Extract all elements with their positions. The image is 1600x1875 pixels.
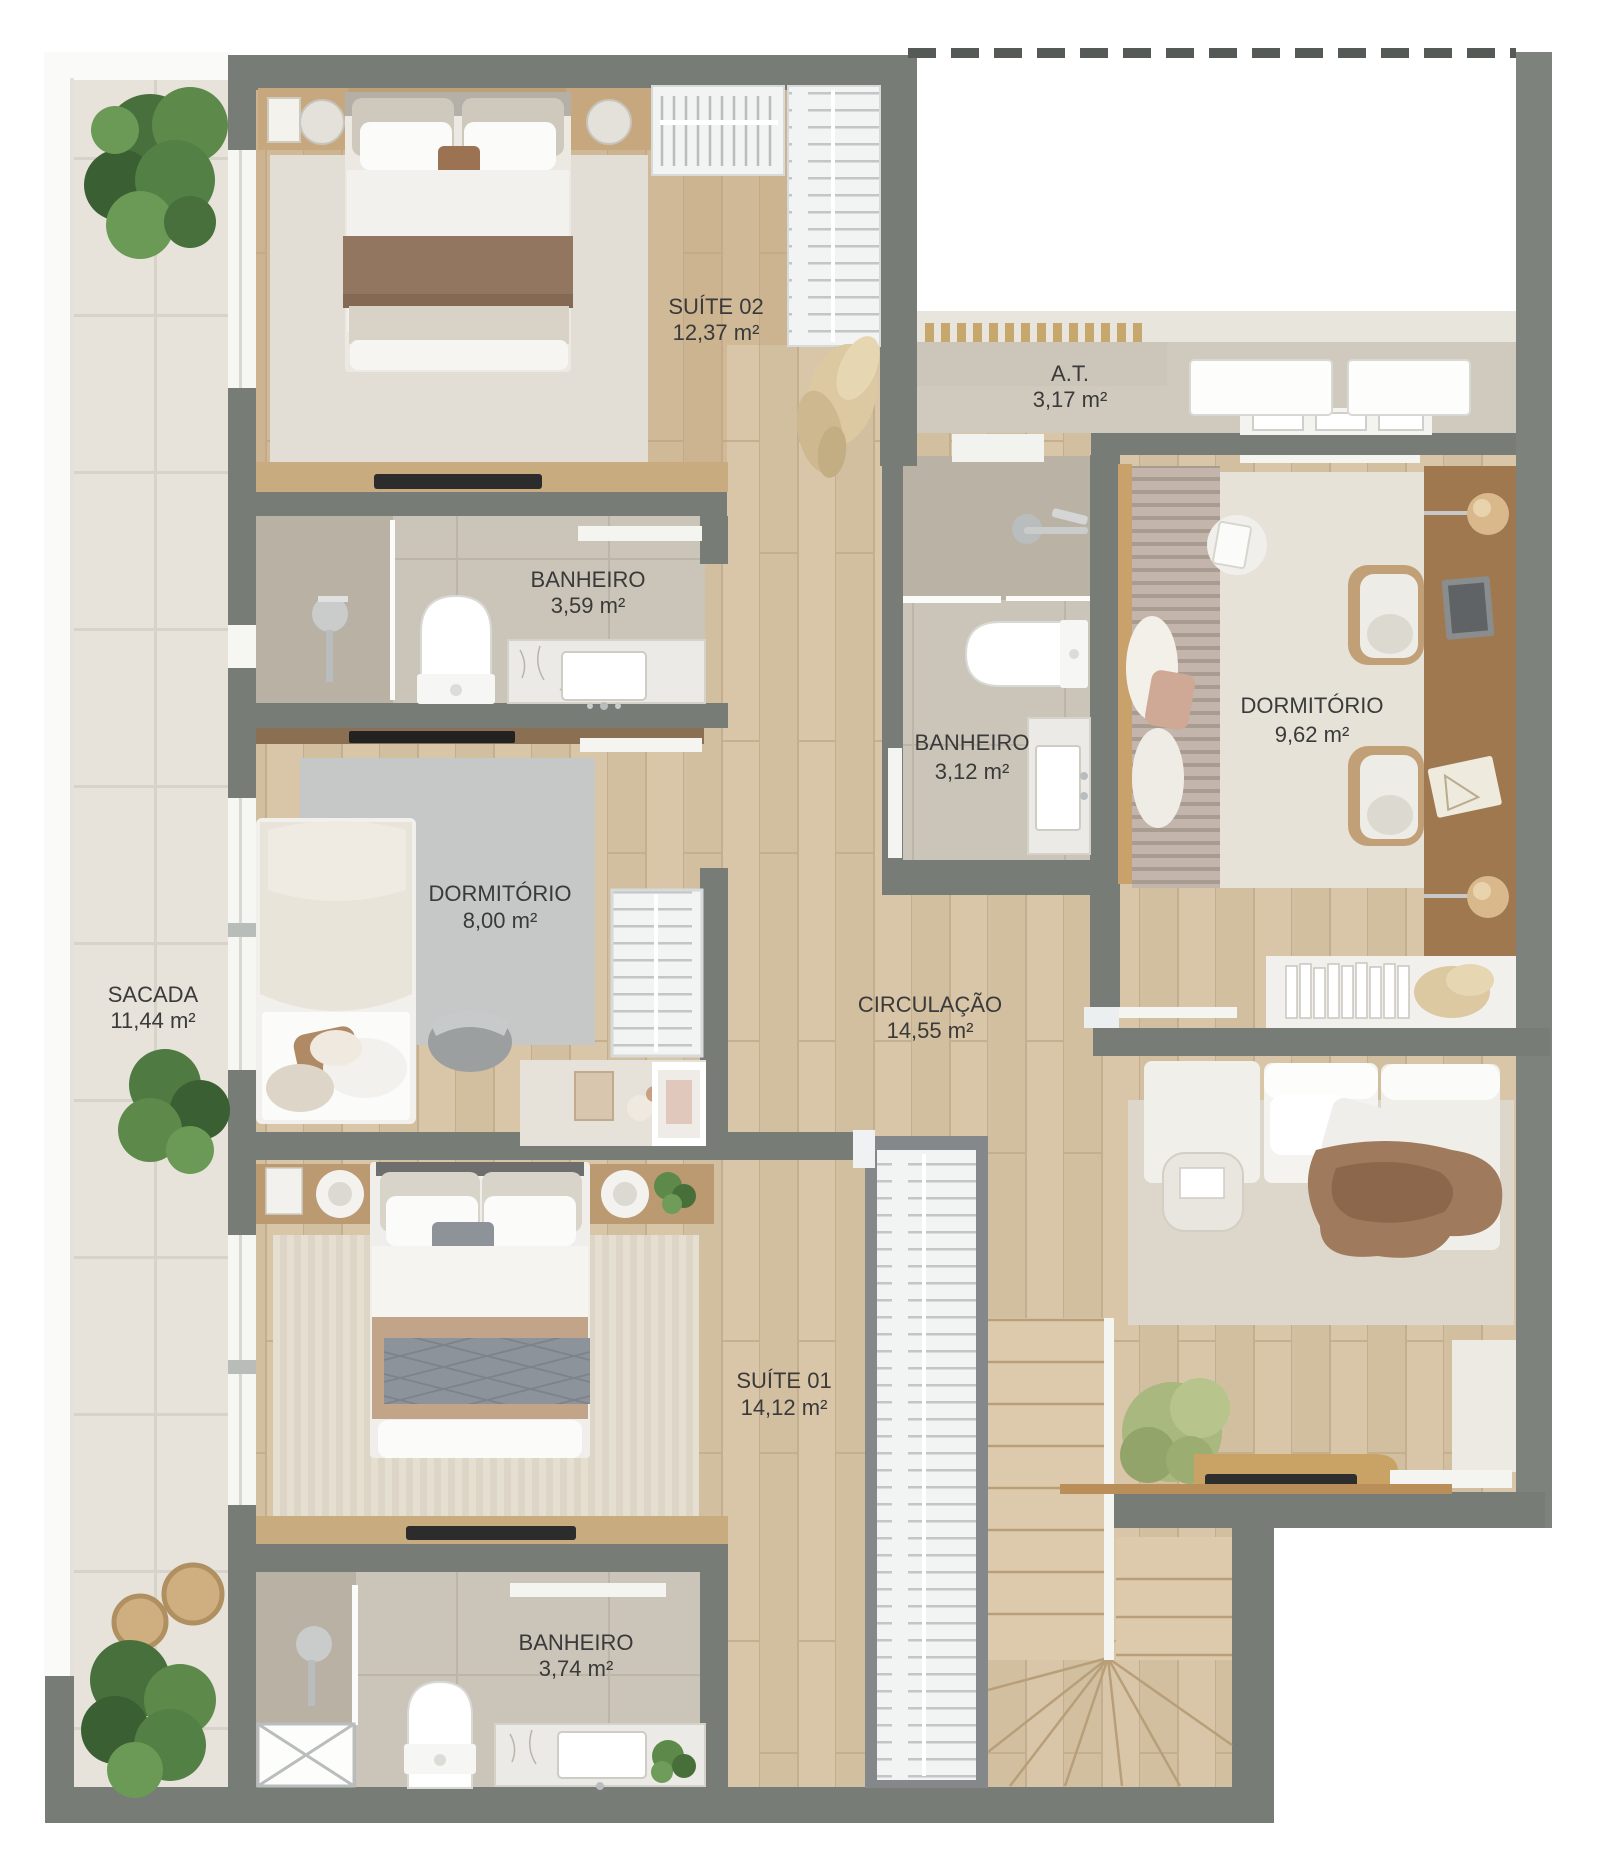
svg-text:3,17 m²: 3,17 m²: [1033, 387, 1108, 412]
svg-text:3,12 m²: 3,12 m²: [935, 759, 1010, 784]
svg-text:3,59 m²: 3,59 m²: [551, 593, 626, 618]
svg-text:BANHEIRO: BANHEIRO: [915, 730, 1030, 755]
svg-text:DORMITÓRIO: DORMITÓRIO: [429, 881, 572, 906]
svg-text:SACADA: SACADA: [108, 982, 199, 1007]
svg-text:BANHEIRO: BANHEIRO: [531, 567, 646, 592]
svg-text:SUÍTE 02: SUÍTE 02: [668, 294, 763, 319]
svg-text:BANHEIRO: BANHEIRO: [519, 1630, 634, 1655]
svg-text:DORMITÓRIO: DORMITÓRIO: [1241, 693, 1384, 718]
svg-text:CIRCULAÇÃO: CIRCULAÇÃO: [858, 992, 1002, 1017]
svg-text:A.T.: A.T.: [1051, 361, 1089, 386]
svg-text:14,12 m²: 14,12 m²: [741, 1395, 828, 1420]
svg-text:3,74 m²: 3,74 m²: [539, 1656, 614, 1681]
svg-text:11,44 m²: 11,44 m²: [110, 1008, 195, 1033]
svg-text:12,37 m²: 12,37 m²: [673, 320, 760, 345]
svg-text:9,62 m²: 9,62 m²: [1275, 722, 1350, 747]
svg-text:14,55 m²: 14,55 m²: [887, 1018, 974, 1043]
svg-text:SUÍTE 01: SUÍTE 01: [736, 1368, 831, 1393]
svg-text:8,00 m²: 8,00 m²: [463, 908, 538, 933]
